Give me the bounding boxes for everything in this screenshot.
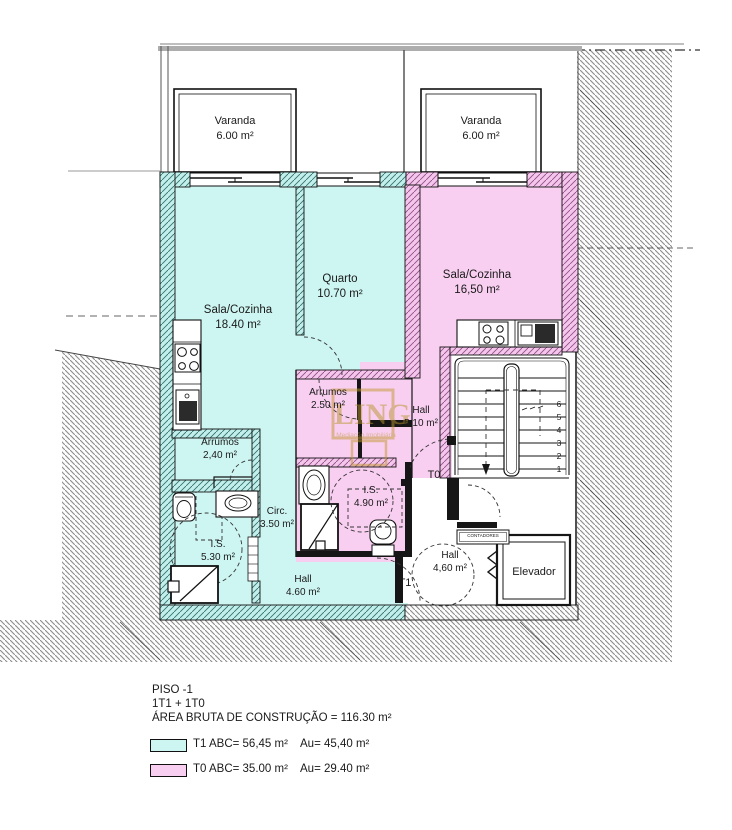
unit-tag-t0: T0 <box>428 468 441 483</box>
room-name: Arrumos <box>201 436 239 449</box>
room-label-hall-t0: Hall 5.10 m² <box>404 404 438 430</box>
room-label-balcony-left: Varanda 6.00 m² <box>215 114 256 143</box>
legend-floor-title: PISO -1 <box>152 684 193 696</box>
window-sala-t1 <box>190 173 280 186</box>
room-name: Hall <box>286 573 320 586</box>
legend-swatch-t0 <box>150 764 187 777</box>
room-area: 10.70 m² <box>317 287 362 302</box>
legend-t1-abc: T1 ABC= 56,45 m² <box>193 738 288 750</box>
stair-number: 5 <box>557 412 562 422</box>
floor-plan-drawing: 1 2 3 4 5 6 LING Mediaç <box>0 0 732 830</box>
watermark-subtext: Mediação Imobiliária <box>336 432 396 439</box>
legend-swatch-t1 <box>150 739 187 752</box>
room-name: Varanda <box>215 114 256 129</box>
room-label-sala-t1: Sala/Cozinha 18.40 m² <box>204 303 272 333</box>
stair-number: 4 <box>557 425 562 435</box>
unit-tag-t1: T1 <box>399 576 412 591</box>
stair-number: 1 <box>557 464 562 474</box>
room-area: 5.10 m² <box>404 417 438 430</box>
stair-number: 6 <box>557 399 562 409</box>
room-name: Circ. <box>260 505 294 518</box>
room-label-is-t1: I.S. 5.30 m² <box>201 538 235 564</box>
room-name: Quarto <box>317 272 362 287</box>
room-label-arrumos-t0: Arrumos 2.50 m² <box>309 386 347 412</box>
room-area: 6.00 m² <box>215 129 256 144</box>
stair-number: 2 <box>557 451 562 461</box>
room-area: 6.00 m² <box>461 129 502 144</box>
room-name: I.S. <box>201 538 235 551</box>
windows <box>190 173 527 186</box>
room-area: 2,40 m² <box>201 449 239 462</box>
room-name: Sala/Cozinha <box>204 303 272 318</box>
room-area: 2.50 m² <box>309 399 347 412</box>
legend-t0-abc: T0 ABC= 35.00 m² <box>193 763 288 775</box>
room-label-sala-t0: Sala/Cozinha 16,50 m² <box>443 268 511 298</box>
room-name: Sala/Cozinha <box>443 268 511 283</box>
room-label-arrumos-t1: Arrumos 2,40 m² <box>201 436 239 462</box>
room-area: 5.30 m² <box>201 551 235 564</box>
room-label-hall-common: Hall 4,60 m² <box>433 549 467 575</box>
window-quarto <box>317 173 380 186</box>
legend-composition: 1T1 + 1T0 <box>152 698 205 710</box>
kitchen-t1 <box>173 320 201 430</box>
room-name: Hall <box>404 404 438 417</box>
room-label-is-t0: I.S. 4.90 m² <box>354 484 388 510</box>
room-name: Arrumos <box>309 386 347 399</box>
room-area: 16,50 m² <box>443 283 511 298</box>
room-label-meters: CONTADORES <box>467 533 498 539</box>
legend-t1-au: Au= 45,40 m² <box>300 738 369 750</box>
legend-t0-au: Au= 29.40 m² <box>300 763 369 775</box>
room-name: I.S. <box>354 484 388 497</box>
room-area: 4.60 m² <box>286 586 320 599</box>
room-area: 4.90 m² <box>354 497 388 510</box>
room-name: Varanda <box>461 114 502 129</box>
stair-number: 3 <box>557 438 562 448</box>
room-label-quarto: Quarto 10.70 m² <box>317 272 362 302</box>
room-area: 3.50 m² <box>260 518 294 531</box>
room-area: 4,60 m² <box>433 562 467 575</box>
room-label-hall-t1: Hall 4.60 m² <box>286 573 320 599</box>
room-label-circ-t1: Circ. 3.50 m² <box>260 505 294 531</box>
floor-plan-page: 1 2 3 4 5 6 LING Mediaç <box>0 0 732 830</box>
room-name: Hall <box>433 549 467 562</box>
legend-gross-area: ÁREA BRUTA DE CONSTRUÇÃO = 116.30 m² <box>152 712 392 724</box>
kitchen-t0 <box>457 320 562 347</box>
room-area: 18.40 m² <box>204 318 272 333</box>
room-label-elevator: Elevador <box>512 565 555 580</box>
room-label-balcony-right: Varanda 6.00 m² <box>461 114 502 143</box>
window-sala-t0 <box>438 173 527 186</box>
